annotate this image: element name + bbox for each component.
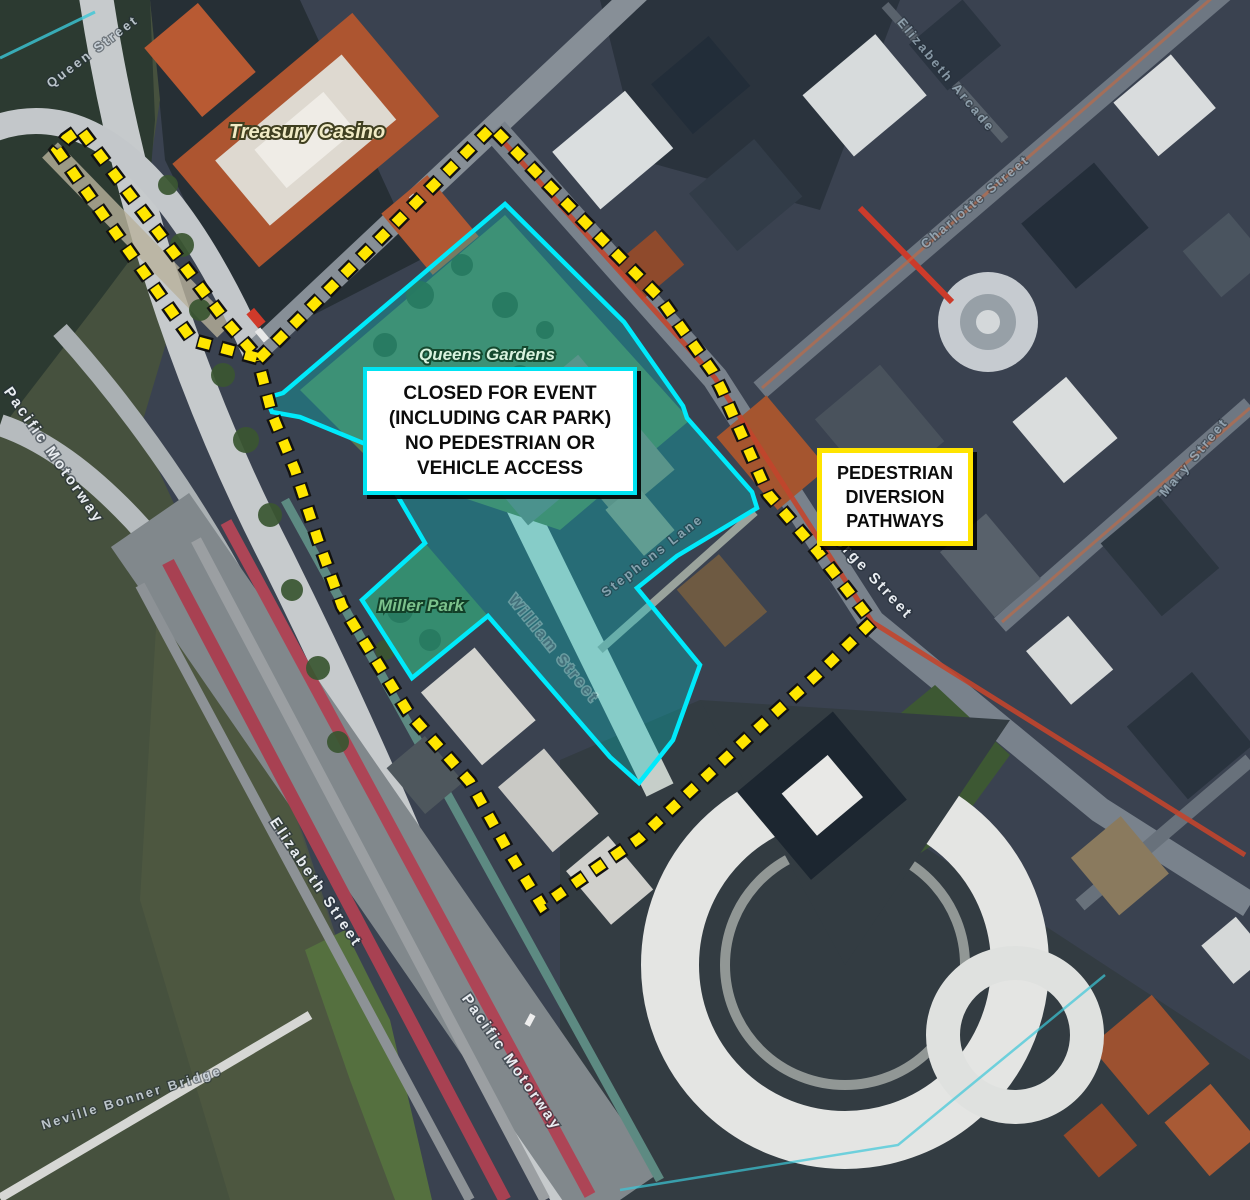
poi-label-miller-park: Miller Park [378,596,466,615]
closed-callout-line: (INCLUDING CAR PARK) [371,406,629,431]
closed-callout-line: CLOSED FOR EVENT [371,381,629,406]
closed-area-callout: CLOSED FOR EVENT (INCLUDING CAR PARK) NO… [363,367,637,495]
closed-callout-line: VEHICLE ACCESS [371,456,629,481]
diversion-callout-line: DIVERSION [826,485,964,509]
diversion-callout: PEDESTRIAN DIVERSION PATHWAYS [817,448,973,546]
diversion-callout-line: PATHWAYS [826,509,964,533]
street-label-charlotte-street: Charlotte Street [918,152,1033,252]
satellite-map: Queen Street Elizabeth Arcade Charlotte … [0,0,1250,1200]
diversion-callout-line: PEDESTRIAN [826,461,964,485]
poi-label-queens-gardens: Queens Gardens [419,345,555,364]
map-canvas[interactable]: Queen Street Elizabeth Arcade Charlotte … [0,0,1250,1200]
closed-callout-line: NO PEDESTRIAN OR [371,431,629,456]
poi-label-treasury-casino: Treasury Casino [229,121,385,143]
street-label-mary-street: Mary Street [1156,415,1231,500]
